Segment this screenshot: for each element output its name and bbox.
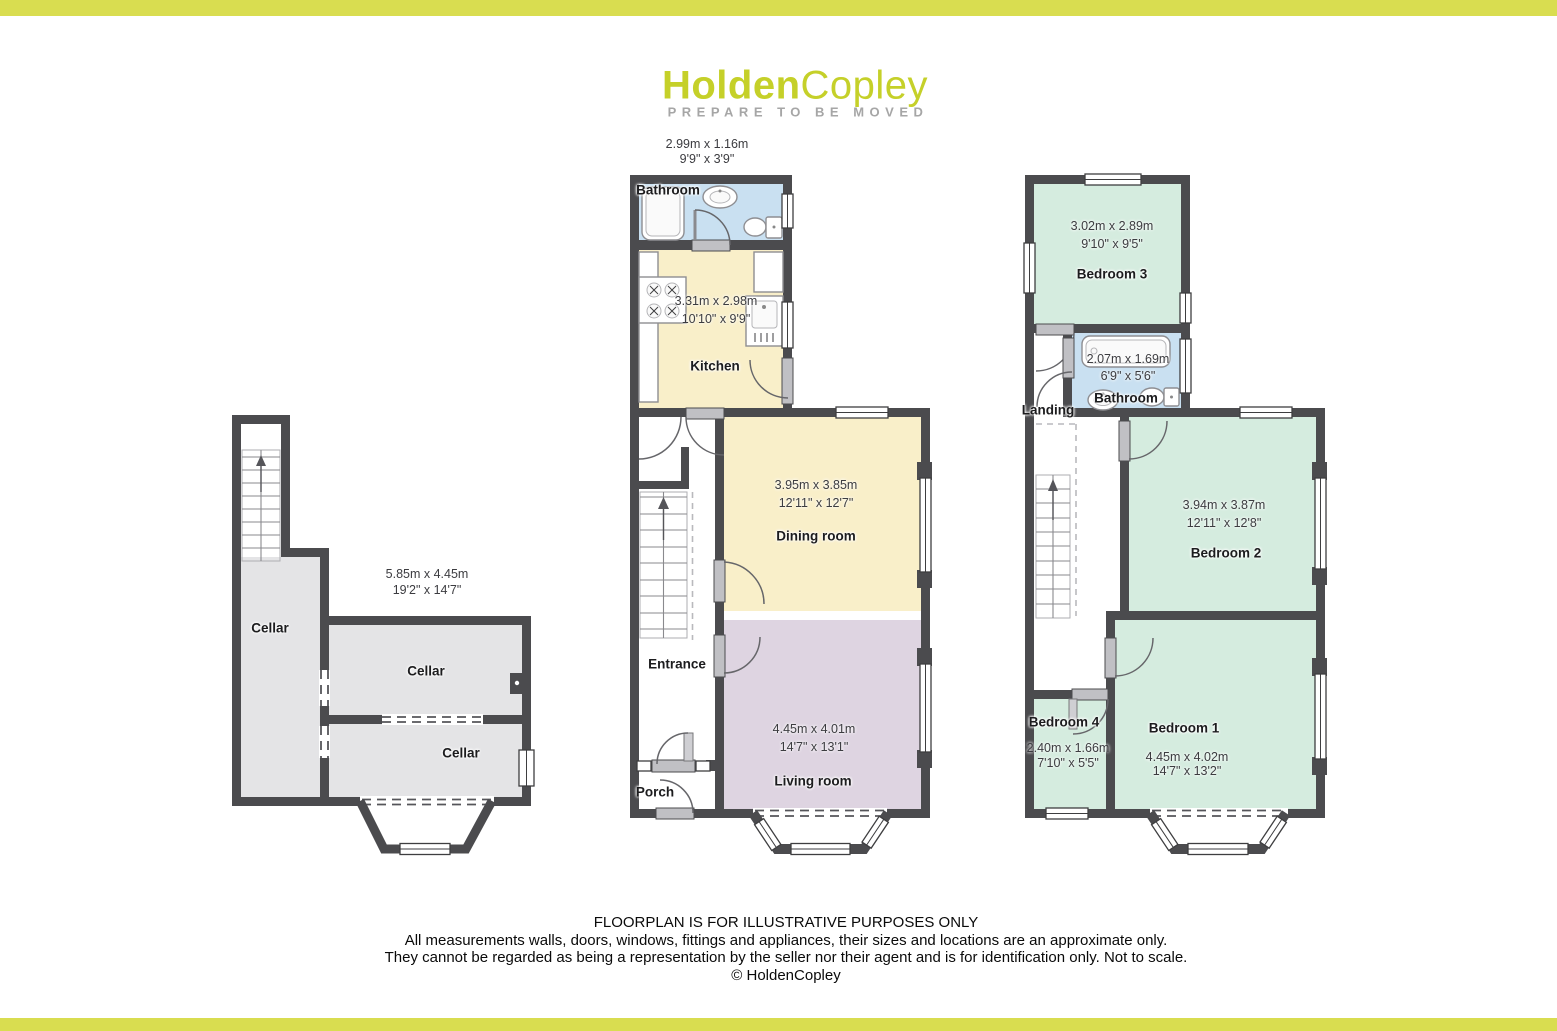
living-dim-imperial: 14'7" x 13'1" — [780, 740, 849, 754]
bedroom3-dim-metric: 3.02m x 2.89m — [1071, 219, 1154, 233]
disclaimer-line1: FLOORPLAN IS FOR ILLUSTRATIVE PURPOSES O… — [385, 914, 1188, 932]
room-label-bedroom3: Bedroom 3 — [1077, 267, 1148, 282]
disclaimer-line2: All measurements walls, doors, windows, … — [385, 932, 1188, 950]
cellar-dim-metric: 5.85m x 4.45m — [386, 567, 469, 581]
living-bay-window — [753, 808, 888, 855]
room-label-kitchen: Kitchen — [690, 359, 740, 374]
bedroom2-dim-metric: 3.94m x 3.87m — [1183, 498, 1266, 512]
room-label-living: Living room — [774, 774, 851, 789]
bedroom4-bottom-window — [1046, 808, 1088, 819]
cellar-bay-window — [360, 796, 494, 855]
room-label-dining: Dining room — [776, 529, 856, 544]
cellar-window — [519, 750, 534, 786]
bedroom4-dim-metric: 2.40m x 1.66m — [1027, 741, 1110, 755]
room-label-bedroom1: Bedroom 1 — [1149, 721, 1220, 736]
room-label-cellar-bottom: Cellar — [442, 746, 480, 761]
room-label-landing: Landing — [1022, 403, 1075, 418]
sink-icon — [703, 186, 737, 208]
ff-bathroom-dim-metric: 2.07m x 1.69m — [1087, 352, 1170, 366]
bedroom2-dim-imperial: 12'11" x 12'8" — [1187, 516, 1262, 530]
landing-stairs — [1036, 424, 1076, 618]
dining-dim-imperial: 12'11" x 12'7" — [779, 496, 854, 510]
room-label-porch: Porch — [636, 785, 674, 800]
gf-bathroom-dim-imperial: 9'9" x 3'9" — [680, 152, 735, 166]
disclaimer: FLOORPLAN IS FOR ILLUSTRATIVE PURPOSES O… — [385, 914, 1188, 984]
disclaimer-line3: They cannot be regarded as being a repre… — [385, 949, 1188, 967]
ff-bathroom-dim-imperial: 6'9" x 5'6" — [1101, 369, 1156, 383]
room-label-bedroom2: Bedroom 2 — [1191, 546, 1262, 561]
bedroom1-dim-imperial: 14'7" x 13'2" — [1153, 764, 1222, 778]
bathroom-window — [782, 194, 793, 228]
bedroom3-side-window — [1024, 243, 1035, 293]
bedroom2-top-window — [1240, 407, 1292, 418]
floorplan-page: HoldenCopley PREPARE TO BE MOVED — [0, 0, 1557, 1031]
bedroom3-dim-imperial: 9'10" x 9'5" — [1081, 237, 1143, 251]
room-label-bedroom4: Bedroom 4 — [1029, 715, 1100, 730]
room-label-cellar-left: Cellar — [251, 621, 289, 636]
porch-inner-door — [637, 733, 710, 772]
bedroom1-bay-window — [1150, 808, 1288, 855]
bedroom4-dim-imperial: 7'10" x 5'5" — [1037, 756, 1099, 770]
room-label-gf-bathroom: Bathroom — [636, 183, 700, 198]
disclaimer-copyright: © HoldenCopley — [385, 967, 1188, 985]
meter-box-icon — [510, 673, 531, 694]
floorplan-drawing — [0, 0, 1557, 1031]
bedroom1-dim-metric: 4.45m x 4.02m — [1146, 750, 1229, 764]
bedroom3-top-window — [1085, 174, 1141, 185]
bathroom-side-window — [1180, 293, 1191, 393]
entrance-stairs — [640, 492, 693, 640]
room-label-ff-bathroom: Bathroom — [1094, 391, 1158, 406]
dining-top-window — [836, 407, 888, 418]
living-dim-metric: 4.45m x 4.01m — [773, 722, 856, 736]
gf-bathroom-dim-metric: 2.99m x 1.16m — [666, 137, 749, 151]
kitchen-dim-metric: 3.31m x 2.98m — [675, 294, 758, 308]
cellar-dim-imperial: 19'2" x 14'7" — [393, 583, 462, 597]
room-label-cellar-middle: Cellar — [407, 664, 445, 679]
room-label-entrance: Entrance — [648, 657, 706, 672]
kitchen-window — [782, 302, 793, 348]
dining-dim-metric: 3.95m x 3.85m — [775, 478, 858, 492]
kitchen-dim-imperial: 10'10" x 9'9" — [682, 312, 751, 326]
cellar-stairs — [242, 450, 280, 561]
